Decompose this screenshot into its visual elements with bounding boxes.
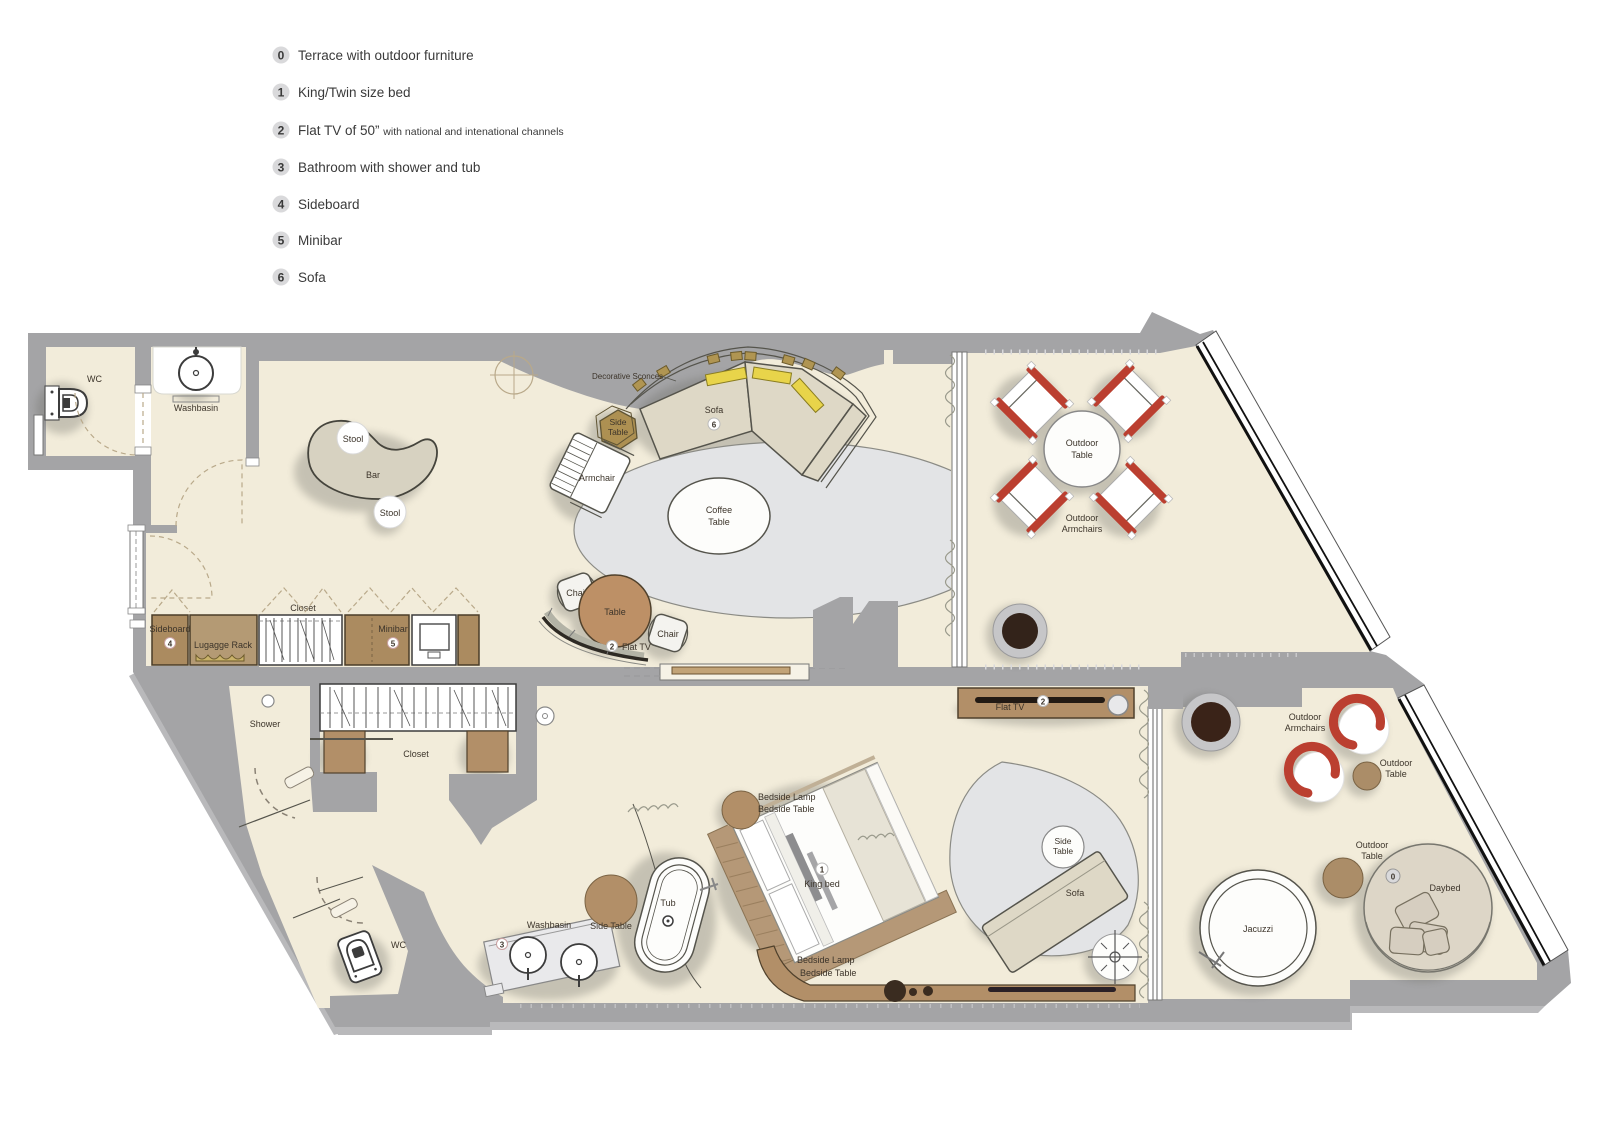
- svg-text:Outdoor: Outdoor: [1066, 513, 1099, 523]
- svg-text:2: 2: [278, 124, 285, 138]
- svg-text:Flat TV: Flat TV: [622, 642, 651, 652]
- svg-text:5: 5: [278, 234, 285, 248]
- svg-text:Stool: Stool: [343, 434, 364, 444]
- svg-text:Tub: Tub: [660, 898, 675, 908]
- svg-text:Stool: Stool: [380, 508, 401, 518]
- svg-text:6: 6: [712, 421, 717, 430]
- svg-text:Jacuzzi: Jacuzzi: [1243, 924, 1273, 934]
- svg-text:Table: Table: [1053, 846, 1074, 856]
- svg-text:Table: Table: [1361, 851, 1383, 861]
- svg-text:Flat TV of 50” with national a: Flat TV of 50” with national and intenat…: [298, 123, 564, 138]
- svg-text:Daybed: Daybed: [1429, 883, 1460, 893]
- svg-text:Armchair: Armchair: [579, 473, 615, 483]
- svg-text:0: 0: [1391, 873, 1396, 882]
- svg-text:King bed: King bed: [804, 879, 840, 889]
- svg-text:4: 4: [278, 198, 285, 212]
- svg-text:Bedside Table: Bedside Table: [758, 804, 814, 814]
- svg-text:1: 1: [278, 86, 285, 100]
- svg-text:WC: WC: [87, 374, 102, 384]
- svg-text:WC: WC: [391, 940, 406, 950]
- svg-text:Shower: Shower: [250, 719, 281, 729]
- svg-text:Sideboard: Sideboard: [149, 624, 190, 634]
- svg-text:2: 2: [610, 643, 615, 652]
- svg-text:Washbasin: Washbasin: [174, 403, 218, 413]
- svg-text:1: 1: [820, 866, 825, 875]
- svg-text:Table: Table: [1071, 450, 1093, 460]
- svg-text:3: 3: [278, 161, 285, 175]
- svg-text:Washbasin: Washbasin: [527, 920, 571, 930]
- svg-text:Chair: Chair: [657, 629, 679, 639]
- svg-text:Bathroom with shower and tub: Bathroom with shower and tub: [298, 160, 480, 175]
- svg-text:Table: Table: [608, 427, 629, 437]
- svg-text:Bedside Lamp: Bedside Lamp: [758, 792, 816, 802]
- svg-text:Table: Table: [604, 607, 626, 617]
- svg-text:Sofa: Sofa: [1066, 888, 1085, 898]
- svg-text:Decorative Sconces: Decorative Sconces: [592, 372, 663, 381]
- svg-text:Flat TV: Flat TV: [996, 702, 1025, 712]
- svg-text:Armchairs: Armchairs: [1285, 723, 1326, 733]
- svg-text:Minibar: Minibar: [298, 233, 343, 248]
- svg-text:Sideboard: Sideboard: [298, 197, 360, 212]
- svg-text:Side: Side: [1054, 836, 1071, 846]
- svg-text:Sofa: Sofa: [298, 270, 326, 285]
- svg-text:4: 4: [168, 640, 173, 649]
- svg-text:2: 2: [1041, 698, 1046, 707]
- svg-text:Closet: Closet: [290, 603, 316, 613]
- svg-text:0: 0: [278, 49, 285, 63]
- svg-text:Bedside Lamp: Bedside Lamp: [797, 955, 855, 965]
- svg-text:Outdoor: Outdoor: [1066, 438, 1099, 448]
- svg-text:Armchairs: Armchairs: [1062, 524, 1103, 534]
- svg-text:Closet: Closet: [403, 749, 429, 759]
- svg-text:5: 5: [391, 640, 396, 649]
- svg-text:Minibar: Minibar: [378, 624, 408, 634]
- svg-text:Outdoor: Outdoor: [1380, 758, 1413, 768]
- svg-text:Table: Table: [708, 517, 730, 527]
- svg-text:6: 6: [278, 271, 285, 285]
- svg-text:King/Twin size bed: King/Twin size bed: [298, 85, 411, 100]
- svg-text:Terrace with outdoor furniture: Terrace with outdoor furniture: [298, 48, 474, 63]
- svg-text:3: 3: [500, 941, 505, 950]
- svg-text:Side: Side: [609, 417, 626, 427]
- svg-text:Bar: Bar: [366, 470, 380, 480]
- svg-text:Table: Table: [1385, 769, 1407, 779]
- svg-text:Coffee: Coffee: [706, 505, 732, 515]
- svg-text:Lugagge Rack: Lugagge Rack: [194, 640, 253, 650]
- svg-text:Sofa: Sofa: [705, 405, 724, 415]
- svg-text:Outdoor: Outdoor: [1356, 840, 1389, 850]
- svg-text:Bedside Table: Bedside Table: [800, 968, 856, 978]
- svg-text:Outdoor: Outdoor: [1289, 712, 1322, 722]
- svg-text:Side Table: Side Table: [590, 921, 632, 931]
